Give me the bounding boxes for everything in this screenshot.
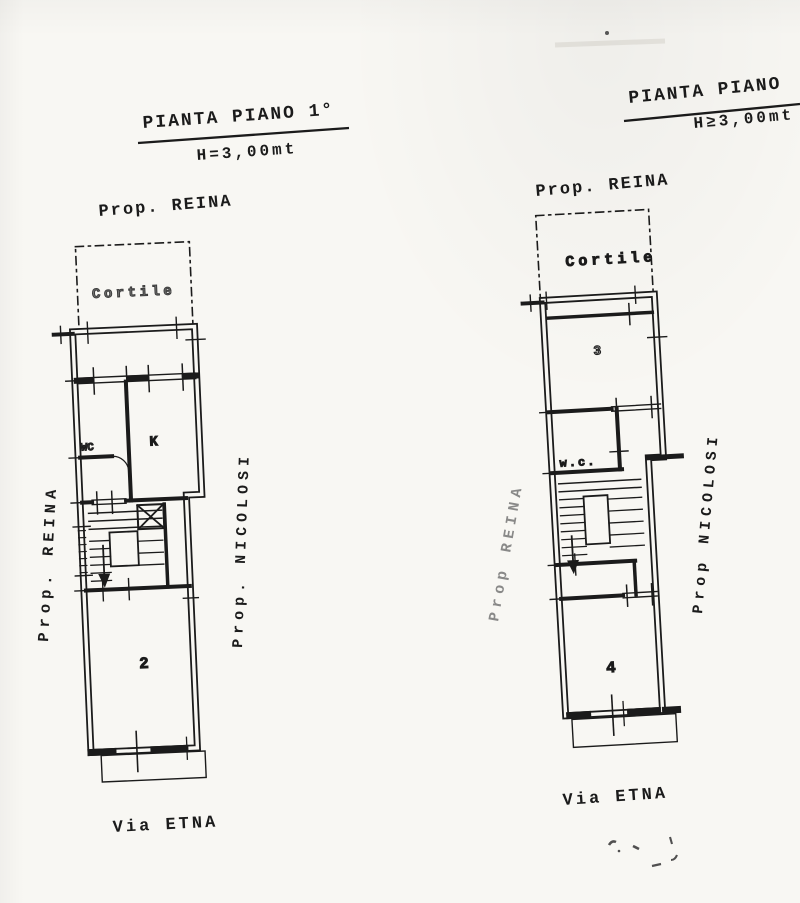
left-plan-title: PIANTA PIANO 1° <box>142 101 335 134</box>
left-room-2-label: 2 <box>139 655 149 673</box>
right-outer-walls <box>523 293 696 717</box>
right-room-wc-label: w.c. <box>559 455 597 471</box>
left-courtyard-label: Cortile <box>92 283 176 303</box>
left-balcony <box>100 729 206 782</box>
right-plan-side-right-label: Prop NICOLOSI <box>690 432 723 615</box>
left-window-band <box>76 364 197 395</box>
left-outer-walls <box>54 327 213 754</box>
ink-smudges <box>609 837 677 866</box>
floor-plan-drawing: PIANTA PIANO 1° H=3,00mt PIANTA PIANO H≥… <box>0 0 800 903</box>
right-plan-side-left-label: Prop REINA <box>486 482 527 623</box>
scan-streak <box>555 41 665 45</box>
right-courtyard-label: Cortile <box>565 249 657 271</box>
left-plan-height-note: H=3,00mt <box>196 140 298 165</box>
right-plan-top-property-label: Prop. REINA <box>535 171 670 202</box>
right-room-3-label: 3 <box>593 343 602 358</box>
ink-dot <box>605 31 609 35</box>
right-floor-plan: Cortile 3 w.c. 4 <box>518 208 698 749</box>
right-plan-header: PIANTA PIANO H≥3,00mt <box>624 74 800 133</box>
left-plan-side-left-label: Prop. REINA <box>35 484 61 642</box>
left-plan-street-label: Via ETNA <box>112 813 218 838</box>
right-plan-street-label: Via ETNA <box>562 785 669 811</box>
wc-door-arc <box>112 456 129 473</box>
right-room-4-label: 4 <box>606 659 617 678</box>
right-plan-height-note: H≥3,00mt <box>693 106 795 133</box>
left-room-kitchen-label: K <box>149 434 159 450</box>
left-stairwell <box>82 503 190 601</box>
right-loggia-band <box>547 302 653 329</box>
scanned-floor-plan-page: PIANTA PIANO 1° H=3,00mt PIANTA PIANO H≥… <box>0 0 800 903</box>
right-plan-title: PIANTA PIANO <box>628 74 783 109</box>
stair-direction-arrow <box>103 546 104 576</box>
left-plan-side-right-label: Prop. NICOLOSI <box>230 452 254 649</box>
left-plan-top-property-label: Prop. REINA <box>98 193 233 222</box>
right-stairwell <box>553 479 647 599</box>
left-plan-header: PIANTA PIANO 1° H=3,00mt <box>138 101 349 165</box>
right-room3-wall <box>548 396 661 423</box>
left-floor-plan: Cortile WC K 2 <box>50 241 224 783</box>
left-room-wc-label: WC <box>80 442 94 455</box>
stair-direction-arrow <box>572 536 573 562</box>
right-room4-wall <box>561 584 658 610</box>
